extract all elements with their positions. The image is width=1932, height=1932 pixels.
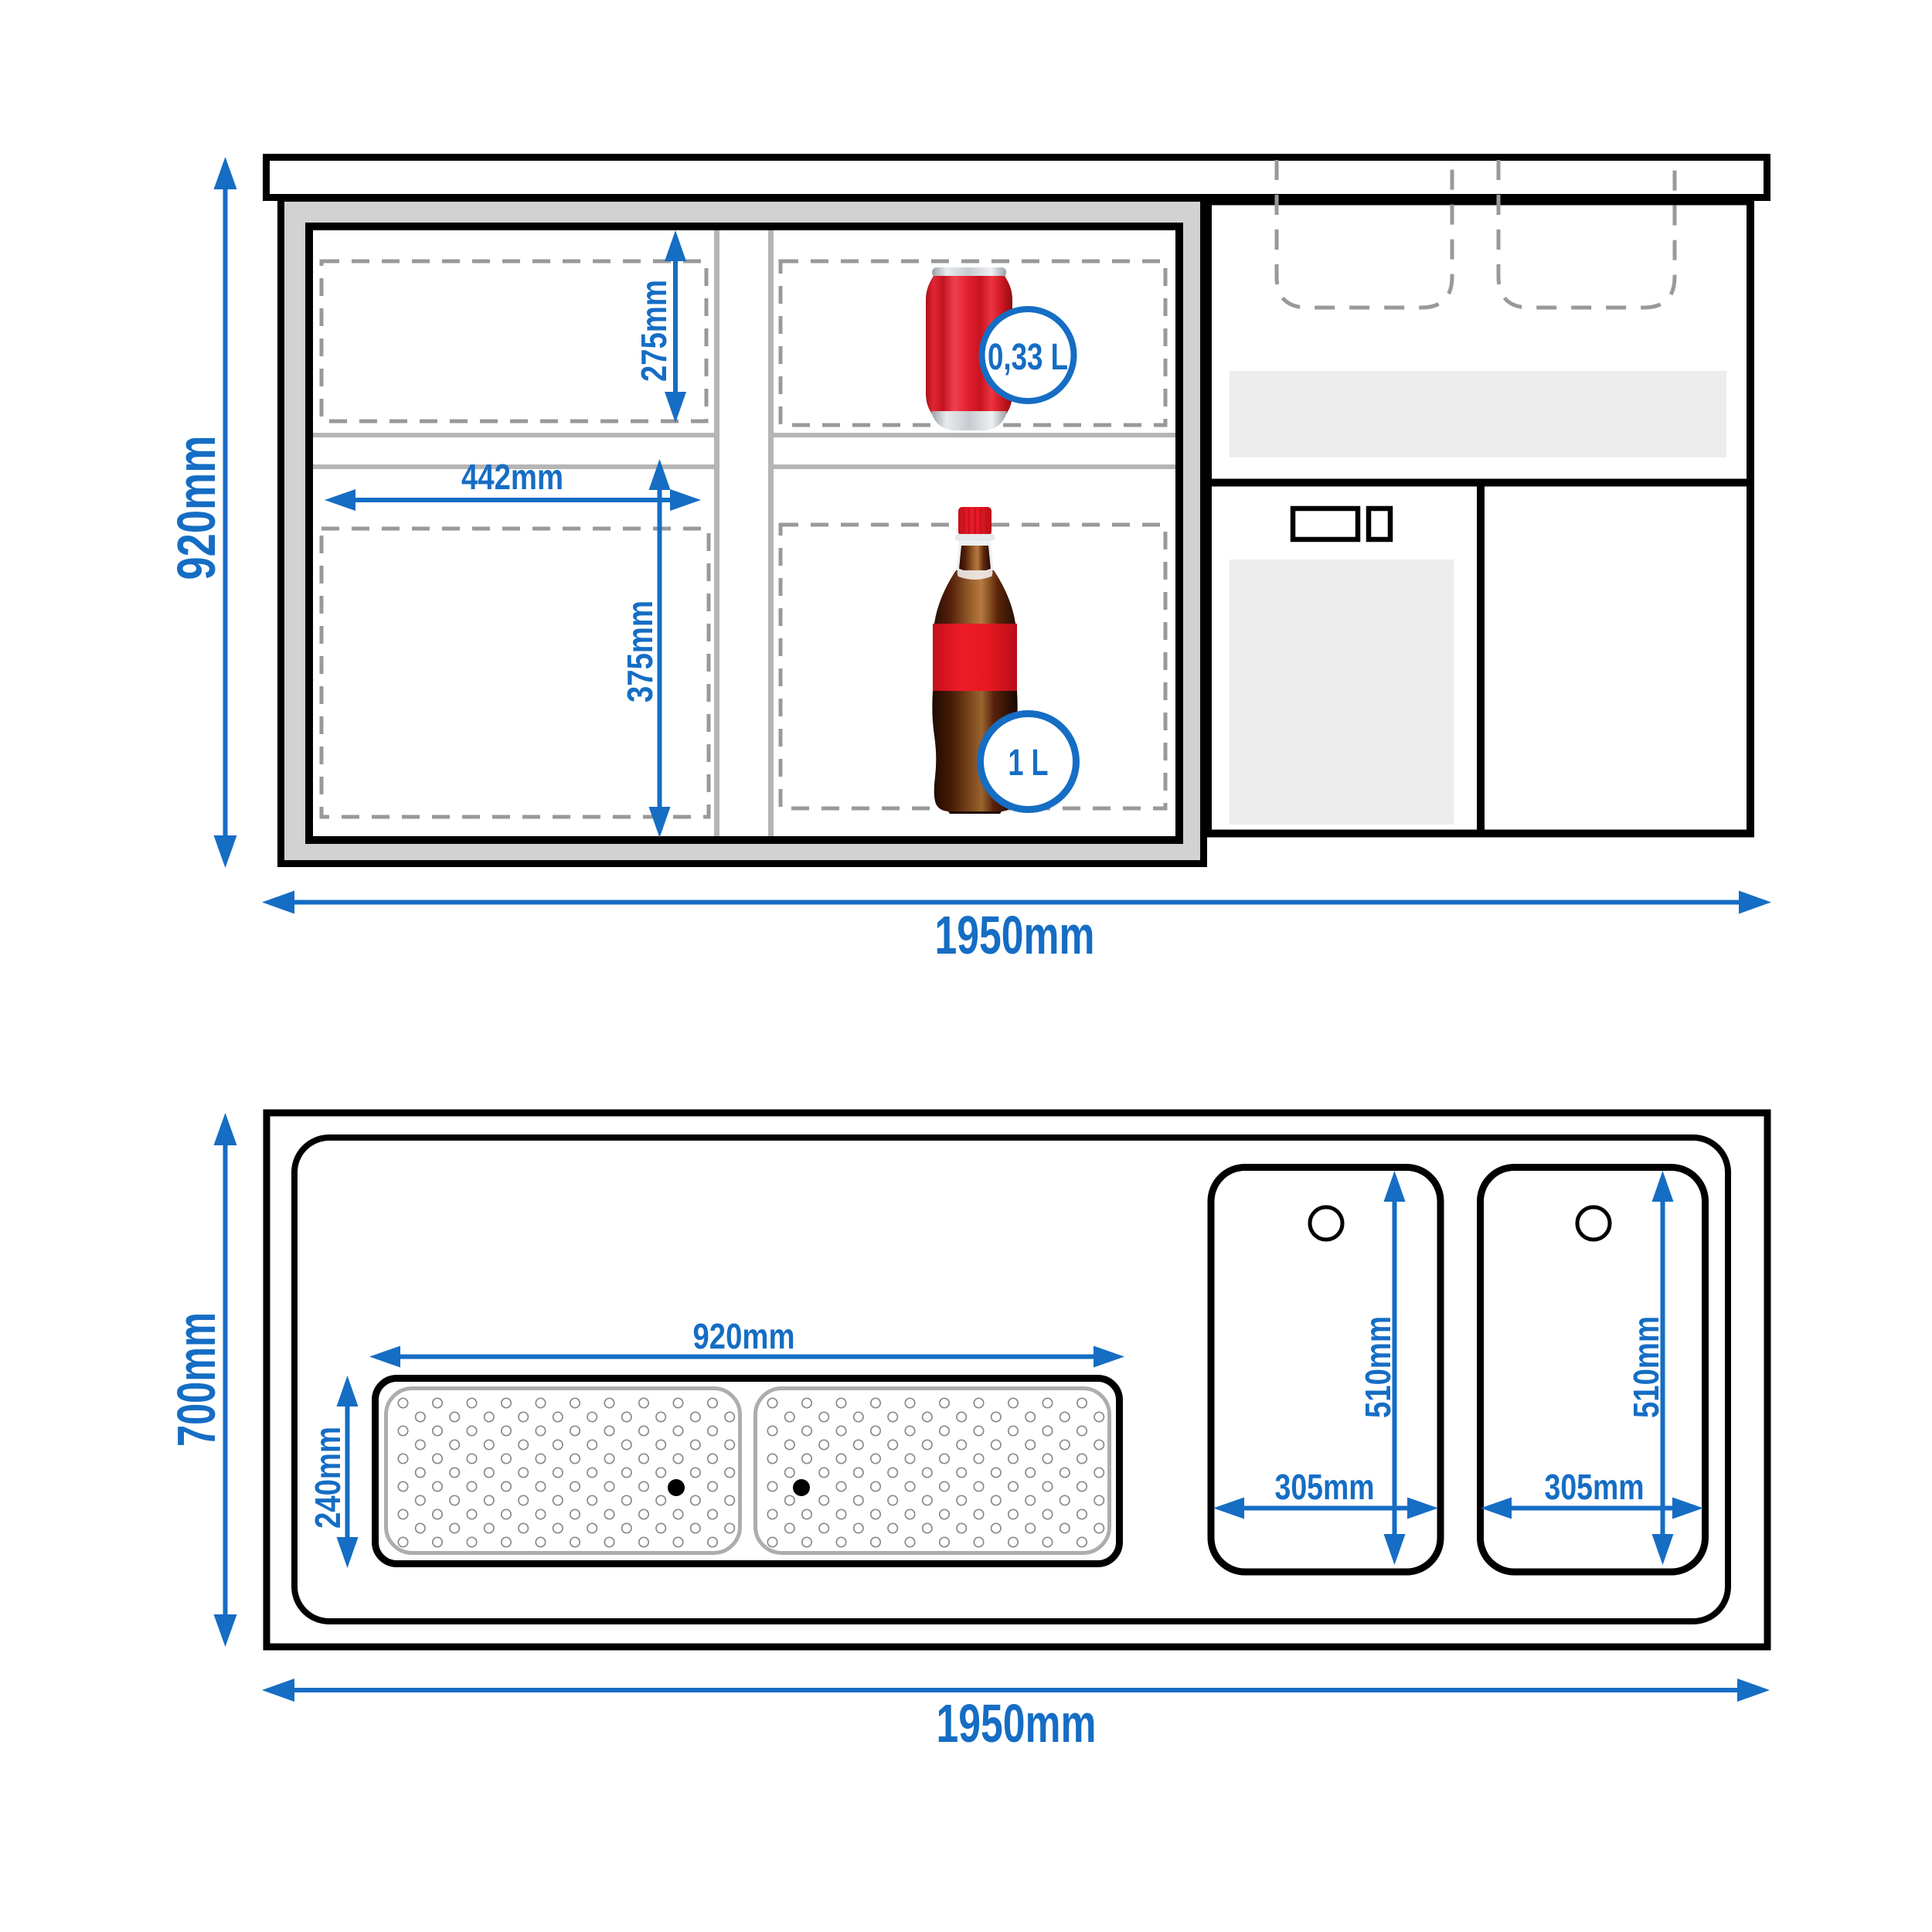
svg-text:240mm: 240mm [308, 1427, 348, 1529]
svg-text:920mm: 920mm [693, 1316, 795, 1356]
svg-text:510mm: 510mm [1358, 1316, 1398, 1418]
svg-text:275mm: 275mm [634, 280, 674, 382]
svg-text:305mm: 305mm [1545, 1467, 1645, 1507]
svg-text:1950mm: 1950mm [935, 905, 1095, 965]
svg-text:442mm: 442mm [461, 457, 563, 497]
svg-text:305mm: 305mm [1275, 1467, 1375, 1507]
svg-text:375mm: 375mm [620, 600, 660, 702]
svg-text:0,33 L: 0,33 L [988, 337, 1068, 378]
svg-text:510mm: 510mm [1626, 1316, 1666, 1418]
svg-text:1950mm: 1950mm [937, 1693, 1097, 1753]
svg-text:1 L: 1 L [1009, 743, 1049, 784]
svg-text:700mm: 700mm [166, 1312, 226, 1447]
svg-text:920mm: 920mm [166, 436, 226, 580]
